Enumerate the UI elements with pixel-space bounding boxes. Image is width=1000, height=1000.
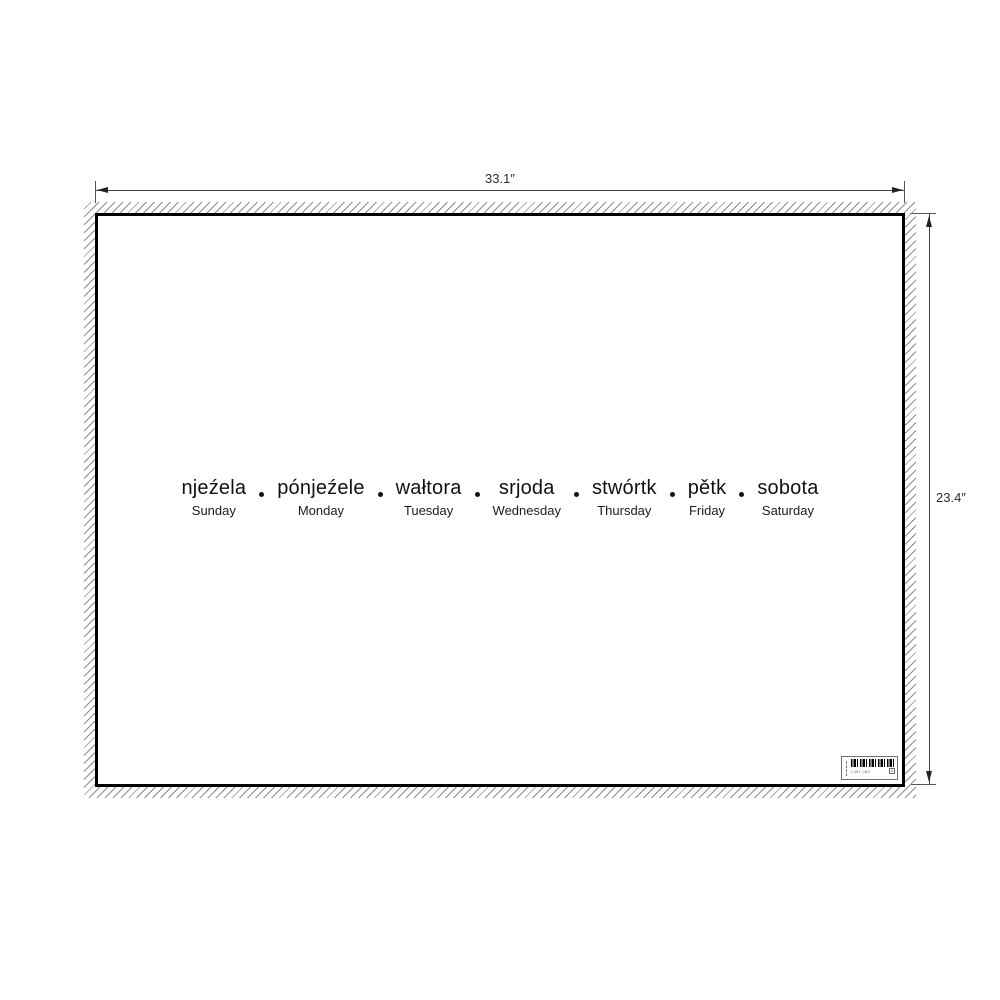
day-name-english: Wednesday (493, 504, 561, 517)
day-name-english: Friday (689, 504, 725, 517)
separator-dot-icon (574, 492, 579, 497)
day-item-wednesday: srjoda Wednesday (493, 478, 561, 517)
separator-dot-icon (475, 492, 480, 497)
sticker-body: L391 083 A (851, 759, 895, 777)
separator-dot-icon (670, 492, 675, 497)
day-name-english: Saturday (762, 504, 814, 517)
day-name-sorbian: njeźela (181, 478, 246, 498)
dimension-arrow-right-icon (892, 187, 903, 193)
day-name-english: Thursday (597, 504, 651, 517)
day-name-english: Tuesday (404, 504, 453, 517)
barcode-icon (851, 759, 895, 767)
day-name-sorbian: srjoda (499, 478, 555, 498)
day-item-sunday: njeźela Sunday (181, 478, 246, 517)
separator-dot-icon (259, 492, 264, 497)
width-extension-tick-left (95, 181, 96, 203)
day-name-sorbian: pónjeźele (277, 478, 364, 498)
height-dimension-label: 23.4″ (936, 490, 966, 505)
day-item-monday: pónjeźele Monday (277, 478, 364, 517)
day-name-english: Sunday (192, 504, 236, 517)
day-name-sorbian: wałtora (396, 478, 462, 498)
sticker-corner-square: A (889, 768, 895, 774)
dimension-arrow-down-icon (926, 771, 932, 782)
width-dimension-label: 33.1″ (95, 171, 905, 186)
bleed-hatch-frame: njeźela Sunday pónjeźele Monday wałtora … (84, 202, 916, 798)
day-name-sorbian: stwórtk (592, 478, 657, 498)
day-name-sorbian: pětk (688, 478, 727, 498)
poster-mockup-canvas: 33.1″ 23.4″ njeźela Sunday pónjeźele Mon… (0, 0, 1000, 1000)
day-name-english: Monday (298, 504, 344, 517)
days-of-week-row: njeźela Sunday pónjeźele Monday wałtora … (98, 478, 902, 517)
separator-dot-icon (739, 492, 744, 497)
barcode-sticker: L391 083 A (841, 756, 898, 780)
separator-dot-icon (378, 492, 383, 497)
poster: njeźela Sunday pónjeźele Monday wałtora … (95, 213, 905, 787)
width-extension-tick-right (904, 181, 905, 203)
day-item-tuesday: wałtora Tuesday (396, 478, 462, 517)
barcode-code-text: L391 083 (851, 770, 870, 774)
day-item-friday: pětk Friday (688, 478, 727, 517)
day-item-thursday: stwórtk Thursday (592, 478, 657, 517)
width-dimension-line (95, 190, 905, 191)
height-dimension-line (929, 214, 930, 784)
day-name-sorbian: sobota (757, 478, 818, 498)
dimension-arrow-left-icon (97, 187, 108, 193)
sticker-vertical-microtext (843, 759, 849, 777)
dimension-arrow-up-icon (926, 216, 932, 227)
day-item-saturday: sobota Saturday (757, 478, 818, 517)
